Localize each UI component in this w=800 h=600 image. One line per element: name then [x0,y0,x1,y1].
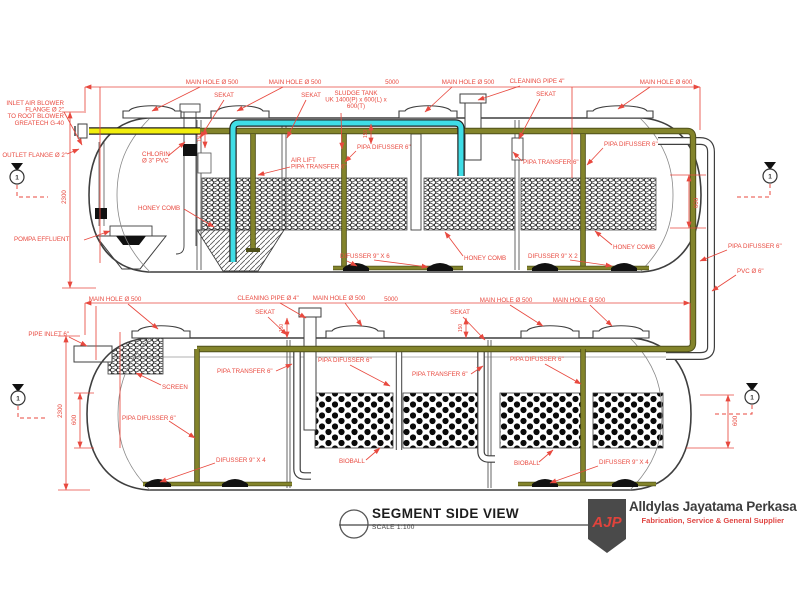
section-dash-line [17,185,48,197]
annotation-label: MAIN HOLE Ø 500 [442,79,495,86]
drawing-title: SEGMENT SIDE VIEW [372,506,519,521]
section-marker-number: 1 [16,395,20,402]
annotation-label: MAIN HOLE Ø 500 [269,79,322,86]
logo-abbr: AJP [592,514,621,531]
annotation-label: PIPA DIFUSSER 6" [122,415,176,422]
logo-company-name: Alldylas Jayatama Perkasa [629,499,797,514]
annotation-label: BIOBALL [339,458,365,465]
annotation-label: PIPA TRANSFER 6" [523,159,579,166]
annotation-label: DIFUSSER 9" X 6 [340,253,390,260]
annotation-label: MAIN HOLE Ø 600 [640,79,693,86]
annotation-label: PVC Ø 6" [737,268,764,275]
leader-line [590,305,612,326]
annotation-label: 600 [693,197,700,208]
annotation-label: PIPA DIFUSSER 6" [510,356,564,363]
annotation-label: 150 [363,130,369,139]
bioball-block [403,393,483,448]
section-dash-line [714,405,752,414]
manhole [123,106,181,118]
manhole [399,106,457,118]
manhole [521,326,579,338]
annotation-label: CLEANING PIPE 4" [510,78,565,85]
annotation-label: 5000 [384,296,398,303]
annotation-label: 600 [71,414,78,425]
annotation-label: HONEY COMB [138,205,180,212]
annotation-label: INLET AIR BLOWERFLANGE Ø 2"TO ROOT BLOWE… [6,100,64,127]
annotation-label: MAIN HOLE Ø 500 [89,296,142,303]
annotation-label: HONEY COMB [464,255,506,262]
annotation-label: SEKAT [301,92,321,99]
logo-tagline: Fabrication, Service & General Supplier [629,516,797,525]
annotation-label: 2300 [57,404,64,418]
annotation-label: SLUDGE TANKUK 1400(P) x 600(L) x600(T) [325,90,387,110]
leader-line [128,304,158,329]
annotation-label: MAIN HOLE Ø 500 [313,295,366,302]
leader-line [345,303,362,326]
annotation-label: 150 [458,324,464,333]
annotation-label: DIFUSSER 9" X 2 [528,253,578,260]
annotation-label: SCREEN [162,384,188,391]
bioball-block [593,393,663,448]
drop-pipe [411,134,421,230]
annotation-label: BIOBALL [514,460,540,467]
leader-line [712,275,736,291]
section-dash-line [18,406,48,418]
leader-line [510,305,543,326]
annotation-label: PIPA TRANSFER 6" [217,368,273,375]
annotation-label: PIPA DIFUSSER 6" [604,141,658,148]
manhole [593,326,649,338]
annotation-label: PIPE INLET 6" [28,331,69,338]
section-dash-line [737,184,770,197]
honeycomb-band [521,178,656,230]
annotation-label: PIPA DIFUSSER 6" [357,144,411,151]
annotation-label: DIFUSSER 9" X 4 [216,457,266,464]
annotation-label: POMPA EFFLUENT [14,236,69,243]
annotation-label: SEKAT [536,91,556,98]
annotation-label: SEKAT [450,309,470,316]
annotation-label: MAIN HOLE Ø 500 [480,297,533,304]
annotation-label: CHLORINØ 3" PVC [142,151,170,165]
annotation-label: PIPA DIFUSSER 6" [728,243,782,250]
annotation-label: 5000 [385,79,399,86]
annotation-label: MAIN HOLE Ø 500 [553,297,606,304]
annotation-label: 150 [279,324,285,333]
leader-line [618,87,650,109]
leader-line [69,337,87,346]
manhole [326,326,384,338]
annotation-label: CLEANING PIPE Ø 4" [237,295,298,302]
leader-line [478,86,520,100]
annotation-label: PIPA TRANSFER 6" [412,371,468,378]
annotation-label: MAIN HOLE Ø 500 [186,79,239,86]
annotation-label: OUTLET FLANGE Ø 2" [2,152,67,159]
company-logo: AJP Alldylas Jayatama Perkasa Fabricatio… [588,499,797,553]
section-marker-number: 1 [750,394,754,401]
section-marker-number: 1 [15,174,19,181]
honeycomb-band [424,178,515,230]
annotation-label: PIPA DIFUSSER 6" [318,357,372,364]
annotation-label: 600 [732,415,739,426]
leader-line [237,87,283,111]
bioball-block [315,393,393,448]
section-marker-number: 1 [768,173,772,180]
drawing-scale: SCALE 1:100 [372,524,519,531]
top-tank-manholes [123,106,653,118]
logo-text: Alldylas Jayatama Perkasa Fabrication, S… [629,499,797,525]
logo-shield-icon: AJP [588,499,626,553]
title-block: SEGMENT SIDE VIEW SCALE 1:100 [372,506,519,531]
annotation-label: 2300 [61,190,68,204]
annotation-label: HONEY COMB [613,244,655,251]
inlet-flange [78,124,87,138]
annotation-label: DIFUSSER 9" X 4 [599,459,649,466]
annotation-label: SEKAT [214,92,234,99]
annotation-label: SEKAT [255,309,275,316]
manhole [132,326,190,338]
pipe-inlet-stub [74,346,112,362]
annotation-label: 150 [197,134,203,143]
bioball-block [500,393,585,448]
bottom-tank-manholes [132,326,649,338]
leader-line [67,149,79,154]
drawing-sheet: MAIN HOLE Ø 500MAIN HOLE Ø 5005000MAIN H… [0,0,800,600]
